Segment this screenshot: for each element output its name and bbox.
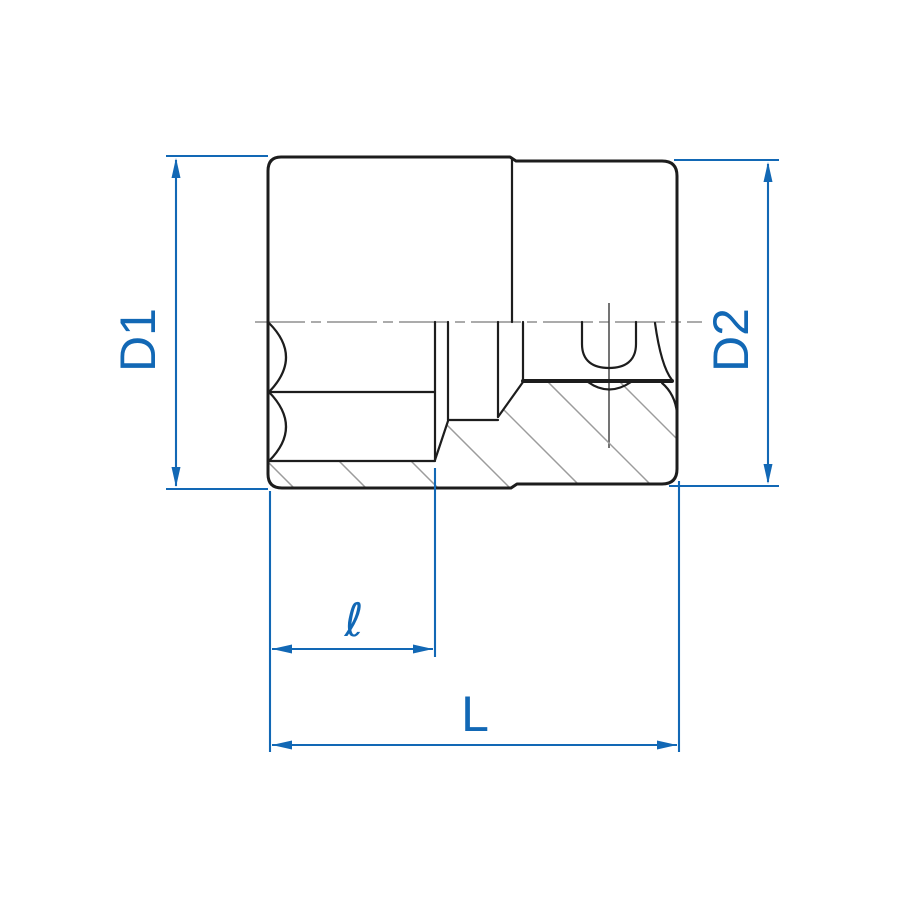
hex-depth-label: ℓ <box>343 593 363 647</box>
d1-arrow-down <box>172 467 181 487</box>
socket-technical-drawing: D1 D2 ℓ L <box>0 0 900 900</box>
drive-mouth-arc-upper <box>655 323 672 380</box>
dimension-d2: D2 <box>669 160 779 486</box>
d2-label: D2 <box>703 308 759 372</box>
hex-depth-arrow-right <box>413 645 433 654</box>
hex-mouth-arc-lower <box>269 392 286 461</box>
socket-technical-drawing-page: D1 D2 ℓ L <box>0 0 900 900</box>
hex-mouth-arc-upper <box>269 323 286 392</box>
drive-mouth-arc-lower <box>662 383 677 413</box>
d2-arrow-down <box>764 464 773 484</box>
drive-chamfer-diagonal <box>498 382 523 417</box>
hex-depth-arrow-left <box>272 645 292 654</box>
d1-arrow-up <box>172 158 181 178</box>
hex-bottom-chamfer <box>435 421 448 460</box>
dimension-overall-length: L <box>272 481 679 752</box>
length-arrow-right <box>657 741 677 750</box>
d2-arrow-up <box>764 162 773 182</box>
d1-label: D1 <box>110 308 166 372</box>
length-label: L <box>461 686 489 742</box>
dimension-hex-depth: ℓ <box>270 468 435 752</box>
dimension-d1: D1 <box>110 156 268 489</box>
length-arrow-left <box>272 741 292 750</box>
